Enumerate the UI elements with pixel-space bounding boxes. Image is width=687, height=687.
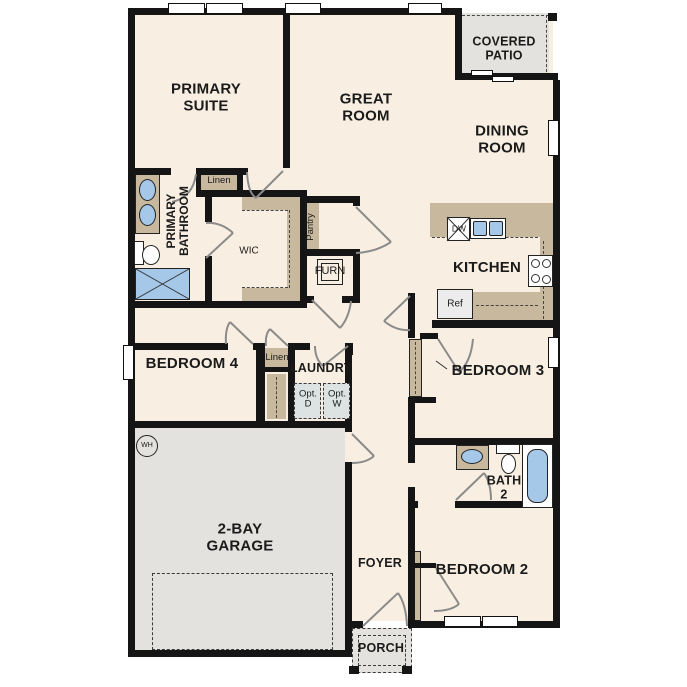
door-leaf [312,300,340,328]
door-arc [352,456,374,463]
label-opt-washer: Opt. W [325,390,349,411]
room-label-wic: WIC [239,246,258,257]
room-label-dining-room: DINING ROOM [462,124,542,157]
door-arc [266,329,270,346]
door-leaf [256,171,283,198]
door-leaf [384,296,410,321]
room-label-primary-suite: PRIMARY SUITE [151,82,261,115]
shower-x-mark [136,269,189,299]
bedroom3-leader-line [436,361,447,369]
floor-plan: PRIMARY SUITE GREAT ROOM COVERED PATIO D… [0,0,687,687]
label-furn: FURN [315,265,346,277]
door-arc [356,242,391,253]
label-water-heater: WH [141,442,153,450]
room-label-bedroom-4: BEDROOM 4 [146,356,239,373]
closet-label-pantry: Pantry [306,213,316,240]
door-leaf [206,233,233,258]
door-leaf [352,434,374,456]
door-leaf [356,207,391,242]
room-label-covered-patio: COVERED PATIO [463,35,545,63]
room-label-kitchen: KITCHEN [453,260,521,277]
door-leaf [230,322,253,344]
room-label-great-room: GREAT ROOM [326,92,406,125]
label-opt-dryer: Opt. D [296,390,320,411]
closet-label-linen-2: Linen [265,353,288,363]
door-arc [206,223,233,233]
door-leaf [270,329,288,346]
room-label-foyer: FOYER [358,557,402,571]
door-arc [247,172,256,198]
door-arc [384,321,410,330]
room-label-bedroom-3: BEDROOM 3 [452,363,545,380]
room-label-bedroom-2: BEDROOM 2 [436,562,529,579]
door-arc [340,301,351,328]
label-dishwasher: DW [452,224,466,233]
door-arc [434,604,459,611]
door-leaf [363,593,398,626]
label-refrigerator: Ref [447,299,463,310]
door-arc [398,593,407,626]
room-label-primary-bathroom: PRIMARY BATHROOM [165,179,191,263]
room-label-porch: PORCH [358,642,404,656]
room-label-bath-2: BATH 2 [482,474,526,502]
room-label-garage: 2-BAY GARAGE [195,522,285,555]
room-label-laundry: LAUNDRY [290,362,352,376]
door-leaf [456,473,484,500]
door-arc [226,322,230,344]
closet-label-linen: Linen [207,176,230,186]
